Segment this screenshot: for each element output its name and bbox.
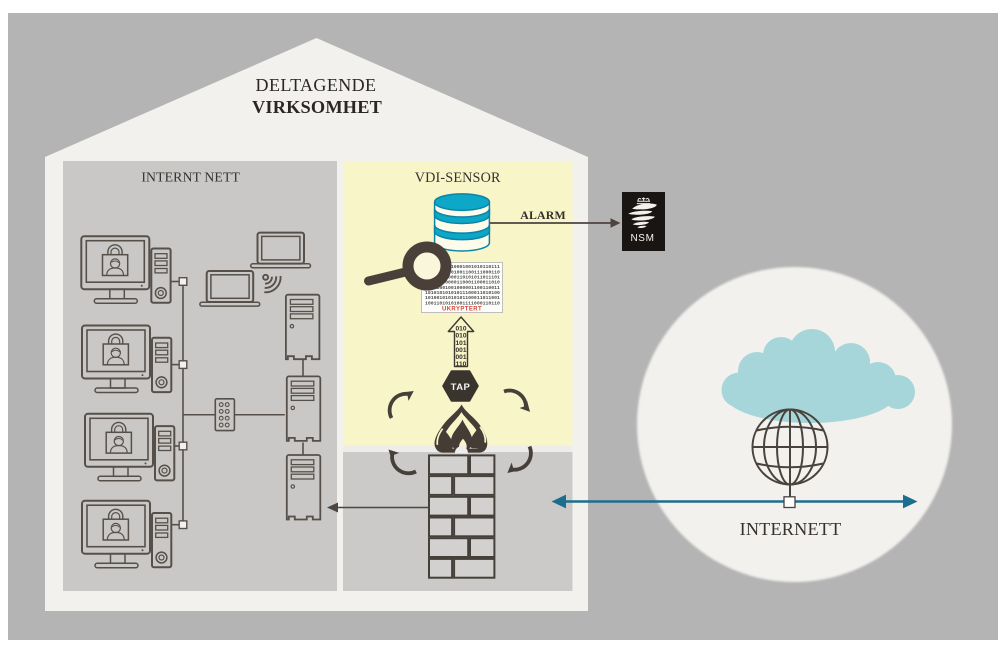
svg-text:TAP: TAP — [451, 382, 471, 393]
svg-text:10011010101001111000110110: 10011010101001111000110110 — [425, 300, 500, 306]
svg-text:10100101010101100011011001: 10100101010101100011011001 — [425, 295, 500, 301]
svg-text:NSM: NSM — [630, 233, 654, 244]
svg-text:010: 010 — [455, 333, 466, 340]
svg-text:10101010101011100011010100: 10101010101011100011010100 — [425, 290, 500, 296]
svg-text:DELTAGENDE: DELTAGENDE — [256, 75, 377, 95]
svg-text:110: 110 — [456, 361, 467, 368]
svg-text:VIRKSOMHET: VIRKSOMHET — [252, 97, 382, 117]
svg-text:UKRYPTERT: UKRYPTERT — [442, 307, 482, 313]
svg-text:010: 010 — [455, 325, 466, 332]
svg-text:VDI-SENSOR: VDI-SENSOR — [415, 170, 501, 186]
svg-text:INTERNT NETT: INTERNT NETT — [141, 169, 240, 184]
svg-text:001: 001 — [455, 347, 466, 354]
svg-text:ALARM: ALARM — [520, 208, 566, 222]
svg-text:INTERNETT: INTERNETT — [740, 519, 842, 539]
svg-text:101: 101 — [455, 340, 466, 347]
